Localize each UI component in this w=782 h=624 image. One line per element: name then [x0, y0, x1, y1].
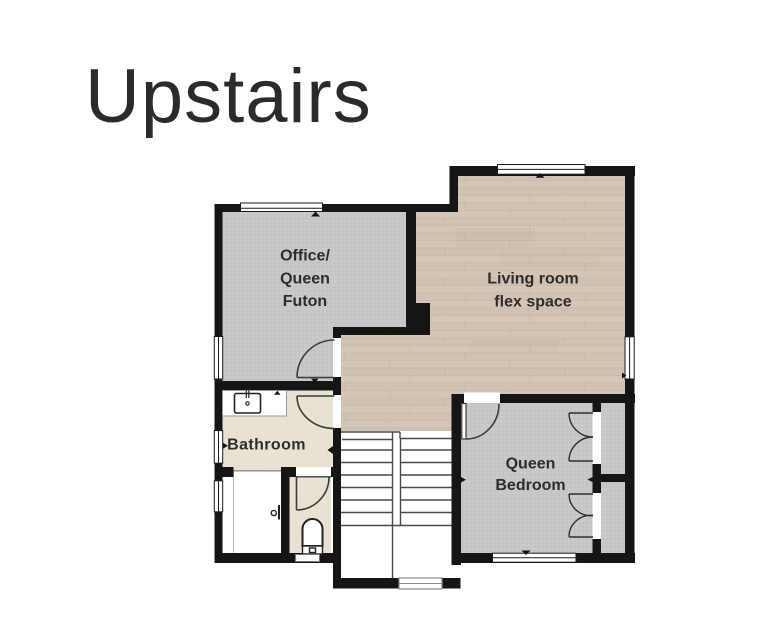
svg-text:Living room: Living room: [487, 271, 579, 288]
svg-text:Queen: Queen: [506, 455, 556, 472]
svg-text:Queen: Queen: [280, 271, 330, 288]
svg-text:Office/: Office/: [280, 248, 330, 265]
svg-text:Futon: Futon: [283, 293, 327, 310]
svg-text:Upstairs: Upstairs: [85, 54, 372, 139]
svg-text:Bathroom: Bathroom: [227, 437, 306, 454]
svg-text:Bedroom: Bedroom: [495, 477, 565, 494]
svg-text:flex space: flex space: [494, 294, 571, 311]
